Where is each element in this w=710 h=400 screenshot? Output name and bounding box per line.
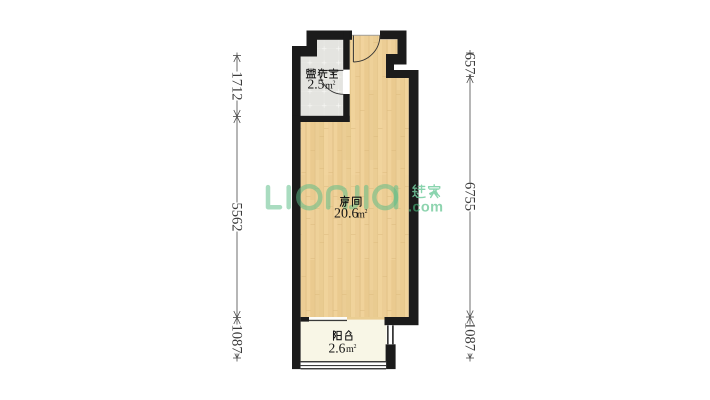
svg-text:657: 657 [462, 53, 478, 75]
svg-text:5562: 5562 [229, 203, 245, 232]
svg-text:.com: .com [408, 200, 443, 216]
svg-text:2.5: 2.5 [308, 77, 325, 92]
svg-text:1712: 1712 [229, 72, 245, 101]
svg-text:1087: 1087 [462, 322, 478, 351]
svg-text:2: 2 [365, 209, 368, 215]
svg-text:1087: 1087 [229, 325, 245, 354]
svg-text:2: 2 [333, 81, 336, 87]
svg-text:6755: 6755 [462, 182, 478, 211]
svg-text:2.6: 2.6 [329, 340, 346, 355]
svg-text:2: 2 [354, 344, 357, 350]
svg-text:20.6: 20.6 [334, 207, 359, 222]
